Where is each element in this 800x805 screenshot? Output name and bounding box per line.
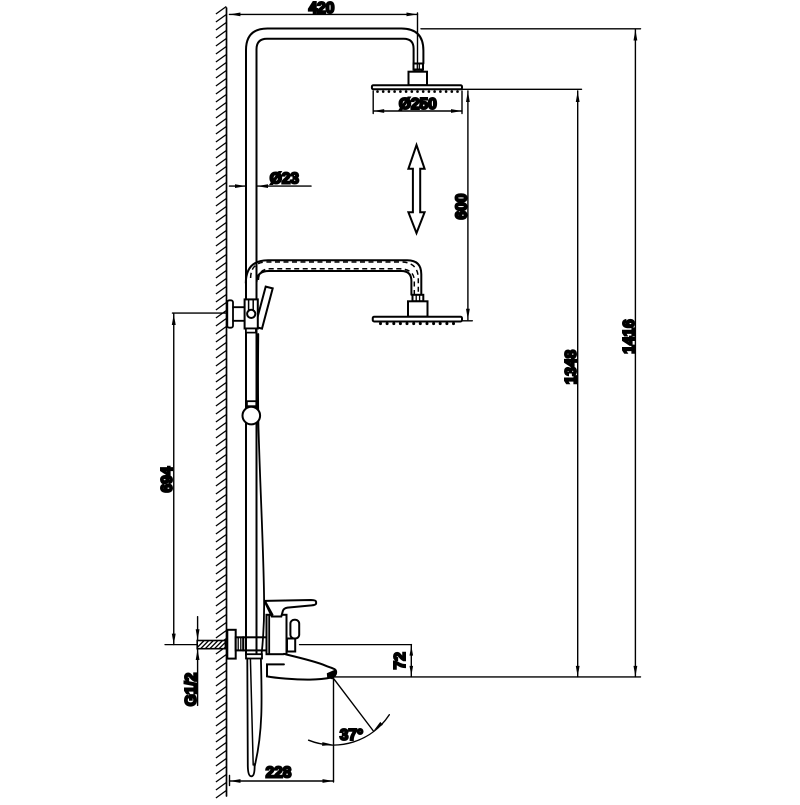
- svg-text:1416: 1416: [621, 319, 638, 354]
- svg-text:Ø23: Ø23: [270, 171, 300, 188]
- svg-text:Ø250: Ø250: [399, 96, 437, 113]
- svg-text:G1/2: G1/2: [183, 673, 200, 707]
- svg-text:37°: 37°: [340, 727, 363, 744]
- svg-text:600: 600: [453, 194, 470, 220]
- svg-text:72: 72: [392, 652, 409, 669]
- svg-text:420: 420: [309, 0, 335, 17]
- svg-text:1348: 1348: [563, 349, 580, 384]
- svg-text:228: 228: [266, 764, 292, 781]
- svg-text:694: 694: [159, 466, 176, 492]
